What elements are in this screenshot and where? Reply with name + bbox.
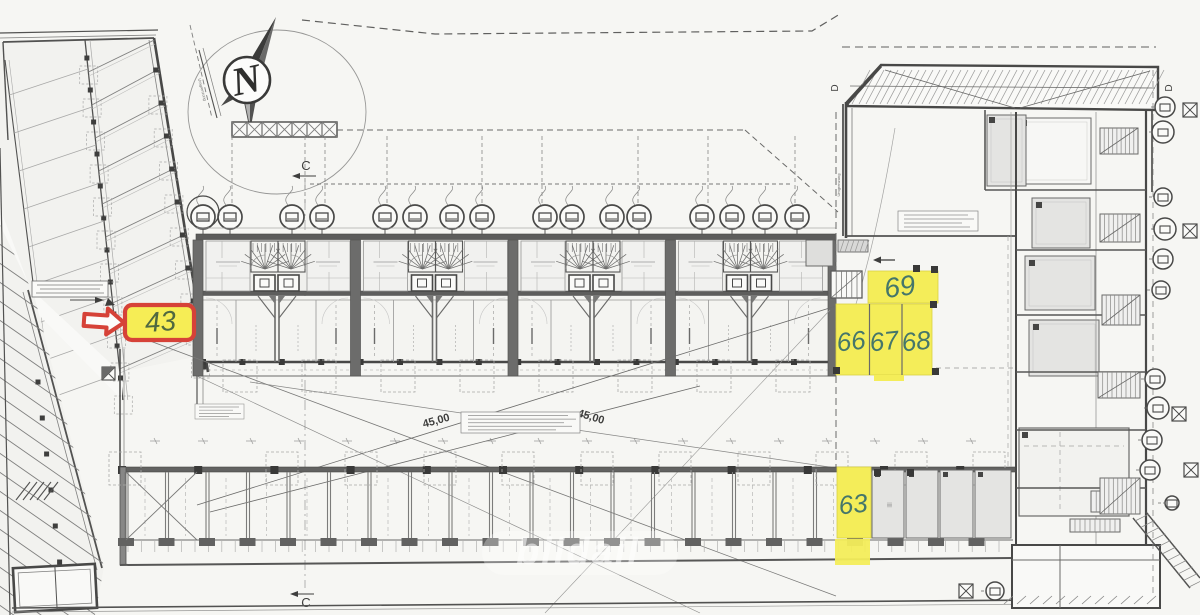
svg-text:blidail: blidail — [516, 531, 640, 573]
